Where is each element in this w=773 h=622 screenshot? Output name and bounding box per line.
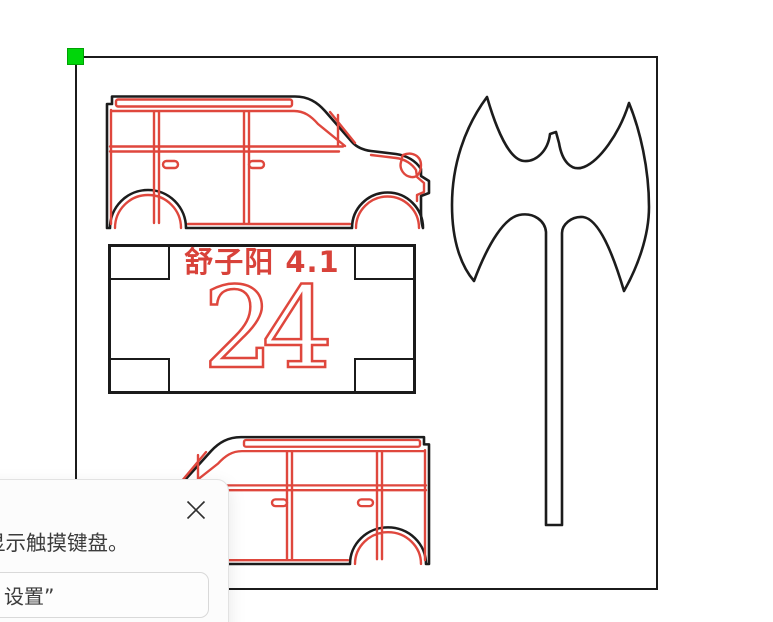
open-settings-button-label: 设置” xyxy=(4,581,54,610)
notification-toast: 显示触摸键盘。 设置” xyxy=(0,479,229,622)
toast-message: 显示触摸键盘。 xyxy=(0,526,129,556)
open-settings-button[interactable]: 设置” xyxy=(0,572,209,618)
selection-handle[interactable] xyxy=(67,48,84,65)
close-icon[interactable] xyxy=(181,495,211,525)
drawing-canvas: 舒子阳 4.1 24 显示触摸键盘。 设置” xyxy=(0,0,773,622)
name-plate-drawing[interactable]: 舒子阳 4.1 24 xyxy=(108,244,416,394)
plate-number-text: 24 xyxy=(111,273,413,385)
battle-axe-drawing[interactable] xyxy=(452,97,649,525)
van-drawing-top[interactable] xyxy=(107,97,429,229)
